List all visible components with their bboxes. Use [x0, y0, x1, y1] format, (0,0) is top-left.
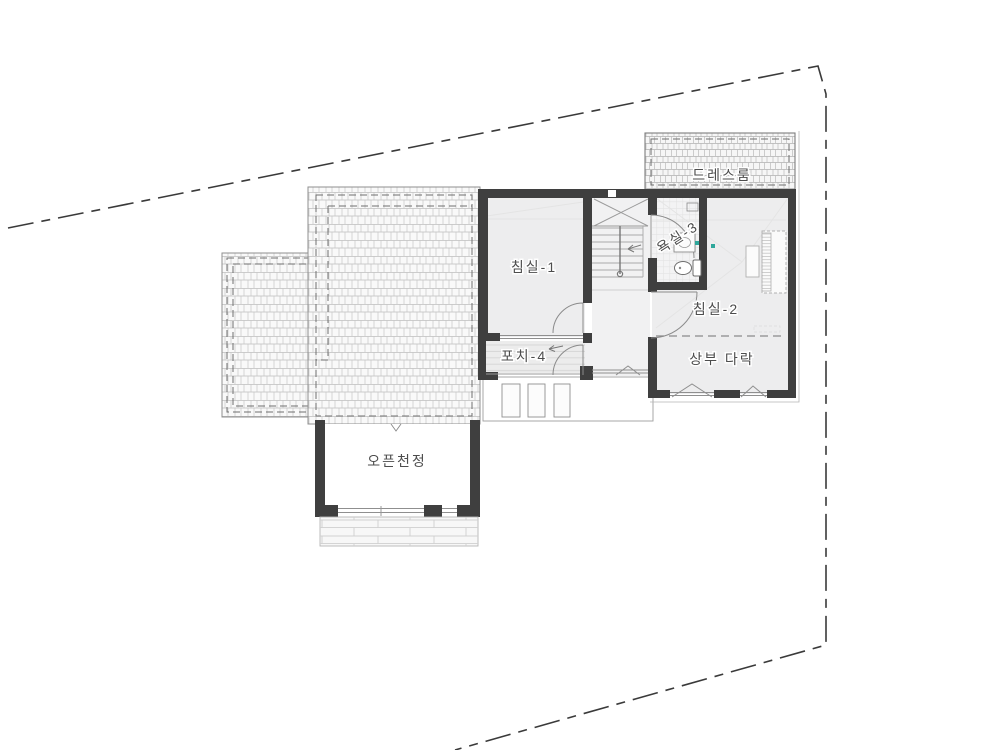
teal-marker — [695, 241, 699, 245]
roof-main — [308, 187, 480, 424]
deck — [320, 517, 478, 546]
floor-plan-drawing: 침실-1 침실-2 욕실-3 드레스룸 포치-4 상부 다락 오픈천정 — [0, 0, 1000, 750]
skylight — [554, 384, 570, 417]
canopy-skylights — [483, 377, 653, 421]
skylight — [502, 384, 520, 417]
skylight — [528, 384, 545, 417]
stair-hall-floor — [592, 197, 650, 376]
wall-right — [788, 197, 796, 398]
label-upper-attic: 상부 다락 — [689, 351, 754, 367]
floor-plan-page: 침실-1 침실-2 욕실-3 드레스룸 포치-4 상부 다락 오픈천정 — [0, 0, 1000, 750]
wall-top — [478, 189, 796, 198]
wall-bedroom1-right — [583, 197, 592, 303]
wall-bathroom-left — [648, 189, 657, 215]
label-bedroom-1: 침실-1 — [511, 259, 557, 275]
toilet-icon — [675, 260, 702, 276]
wall-bedroom1-left — [478, 189, 488, 341]
bed-icon — [762, 231, 786, 293]
wall-bathroom-bottom — [648, 282, 707, 290]
label-porch-4: 포치-4 — [501, 348, 547, 364]
label-bedroom-2: 침실-2 — [693, 301, 739, 317]
roof-dressroom — [645, 133, 795, 192]
label-dressroom: 드레스룸 — [692, 167, 752, 183]
nightstand-icon — [746, 246, 759, 277]
label-open-ceiling: 오픈천정 — [367, 453, 427, 469]
teal-marker — [711, 244, 715, 248]
